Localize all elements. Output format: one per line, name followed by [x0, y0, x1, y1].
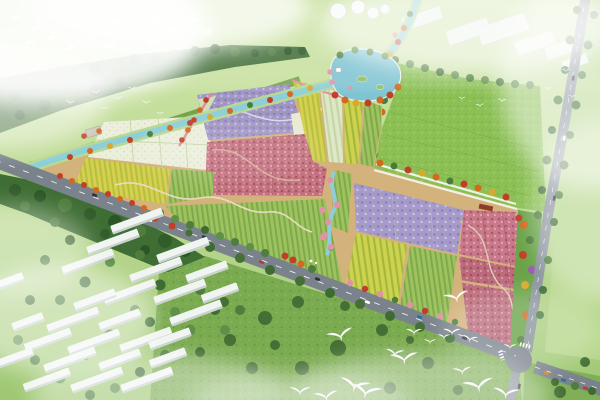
- scene-canvas: [0, 0, 600, 400]
- atmosphere-haze: [0, 0, 600, 90]
- aerial-landscape-render: [0, 0, 600, 400]
